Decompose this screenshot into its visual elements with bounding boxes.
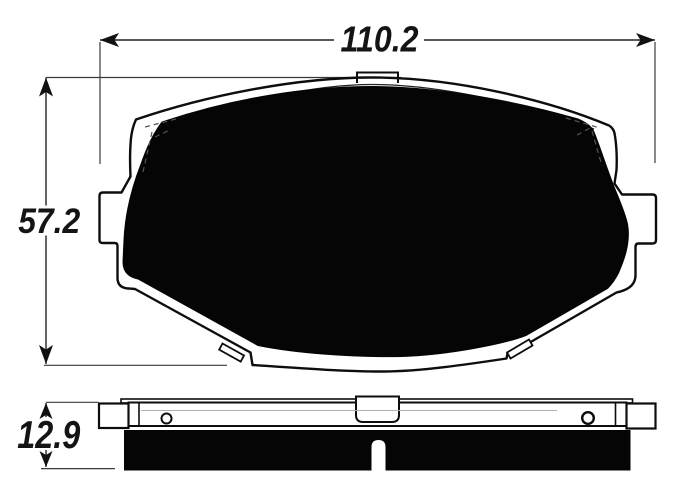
svg-text:57.2: 57.2 <box>18 202 80 241</box>
svg-text:12.9: 12.9 <box>17 414 80 457</box>
svg-text:110.2: 110.2 <box>341 19 419 60</box>
